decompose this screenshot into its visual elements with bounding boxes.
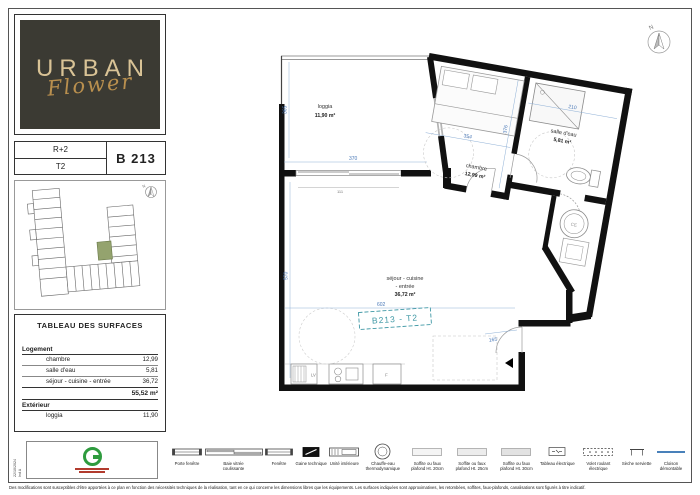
legend-item-soffite-30: Soffite ou faux plafond Ht. 30cm xyxy=(495,443,537,471)
soffite-30-icon xyxy=(501,443,531,460)
gaine-technique-icon xyxy=(302,443,320,460)
compass-label: N xyxy=(648,25,654,32)
disclaimer-text: Des modifications sont susceptibles d'êt… xyxy=(9,485,697,490)
legend-item-unite-interieure: Unité intérieure xyxy=(329,443,359,466)
legend-item-chauffe-eau: Chauffe-eau thermodynamique xyxy=(362,443,404,471)
seche-serviette-icon xyxy=(628,443,646,460)
sejour-label-line2: - entrée xyxy=(396,284,415,290)
soffite-20-icon xyxy=(412,443,442,460)
site-plan-drawing: N xyxy=(15,181,165,309)
section-logement: Logement xyxy=(22,346,158,355)
sejour-label-line1: séjour - cuisine xyxy=(387,276,424,282)
tableau-electrique-icon xyxy=(548,443,566,460)
salle-eau-area: 5,81 m² xyxy=(553,137,572,146)
surface-row: chambre12,99 xyxy=(22,355,158,366)
site-plan-thumbnail: N xyxy=(14,180,166,310)
legend-bar: Porte fenêtre Baie vitrée coulissante Fe… xyxy=(172,443,688,480)
legend-item-tableau-electrique: Tableau électrique xyxy=(540,443,575,466)
legend-item-porte-fenetre: Porte fenêtre xyxy=(172,443,202,466)
surface-table: TABLEAU DES SURFACES Logement chambre12,… xyxy=(14,314,166,432)
porte-fenetre-icon xyxy=(172,443,202,460)
water-heater-closet: CE xyxy=(536,195,596,293)
sejour-room: 165 LV xyxy=(279,176,591,391)
entrance-arrow-icon xyxy=(505,358,513,368)
surface-table-title: TABLEAU DES SURFACES xyxy=(15,321,165,330)
architect-stamp xyxy=(26,441,158,479)
unite-interieure-icon xyxy=(329,443,359,460)
dishwasher-label: LV xyxy=(311,373,316,378)
legend-item-seche-serviette: Sèche serviette xyxy=(622,443,652,466)
legend-item-fenetre: Fenêtre xyxy=(265,443,293,466)
loggia-area: 11,90 m² xyxy=(315,113,336,119)
soffite-zone xyxy=(433,336,497,380)
dim-entree: 165 xyxy=(489,337,498,344)
chambre-area: 12,99 m² xyxy=(464,171,486,181)
surface-row: salle d'eau5,81 xyxy=(22,366,158,377)
unit-number: B 213 xyxy=(107,142,165,174)
wc-icon xyxy=(565,166,600,187)
surface-total: 55,52 m² xyxy=(22,388,158,400)
section-exterieur: Extérieur xyxy=(22,402,158,411)
architect-logo-icon xyxy=(83,447,102,466)
legend-item-baie-vitree: Baie vitrée coulissante xyxy=(205,443,263,471)
unit-info-table: R+2 T2 B 213 xyxy=(14,141,166,175)
cloison-demontable-icon xyxy=(656,443,686,460)
soffite-25-icon xyxy=(457,443,487,460)
unit-type: T2 xyxy=(15,159,106,175)
legend-item-soffite-25: Soffite ou faux plafond Ht. 25cm xyxy=(451,443,493,471)
dim-window: 111 xyxy=(337,189,344,194)
sink-icon xyxy=(329,364,363,384)
floor-plan: loggia 11,90 m² 370 365 111 xyxy=(177,12,693,440)
surface-row: loggia11,90 xyxy=(22,411,158,421)
fridge-icon: F xyxy=(373,364,401,384)
unit-floor: R+2 xyxy=(15,142,106,159)
fenetre-icon xyxy=(265,443,293,460)
unit-info-left: R+2 T2 xyxy=(15,142,107,174)
compass-icon: N xyxy=(648,25,670,53)
kitchen-units: LV F xyxy=(285,364,405,384)
legend-item-gaine-technique: Gaine technique xyxy=(296,443,327,466)
mini-compass-icon: N xyxy=(142,183,157,197)
sejour-area: 36,72 m² xyxy=(395,292,416,298)
stamp-text-bar xyxy=(75,468,109,470)
surface-row: séjour - cuisine - entrée36,72 xyxy=(22,377,158,388)
loggia-label: loggia xyxy=(318,104,334,110)
chauffe-eau-icon xyxy=(374,443,391,460)
legend-item-soffite-20: Soffite ou faux plafond Ht. 20cm xyxy=(406,443,448,471)
mini-compass-label: N xyxy=(142,183,147,189)
baie-vitree-icon xyxy=(296,171,401,176)
brand-logo: URBAN Flower xyxy=(14,14,166,135)
appliance-icon xyxy=(559,238,589,266)
dim-loggia-height: 365 xyxy=(283,105,289,114)
dishwasher-icon: LV xyxy=(291,364,317,384)
unit-tag-box: B213 - T2 xyxy=(358,308,431,330)
dim-sejour-width: 602 xyxy=(377,302,386,308)
brand-logo-panel: URBAN Flower xyxy=(20,20,160,129)
loggia-room: loggia 11,90 m² 370 365 111 xyxy=(279,56,451,194)
highlighted-unit xyxy=(97,241,113,260)
dim-loggia-width: 370 xyxy=(349,156,358,162)
volet-roulant-icon xyxy=(583,443,613,460)
baie-vitree-legend-icon xyxy=(205,443,263,460)
legend-item-volet-roulant: Volet roulant électrique xyxy=(577,443,619,471)
dim-sejour-height: 570 xyxy=(284,271,290,280)
fridge-label: F xyxy=(385,373,388,378)
revision-date: 22/10/2024 Ind A xyxy=(13,437,24,477)
water-heater-icon: CE xyxy=(558,208,590,240)
stamp-text-bar xyxy=(79,471,105,473)
plan-sheet: URBAN Flower R+2 T2 B 213 xyxy=(0,0,700,495)
legend-item-cloison-demontable: Cloison démontable xyxy=(654,443,688,471)
entrance-door xyxy=(496,327,522,368)
